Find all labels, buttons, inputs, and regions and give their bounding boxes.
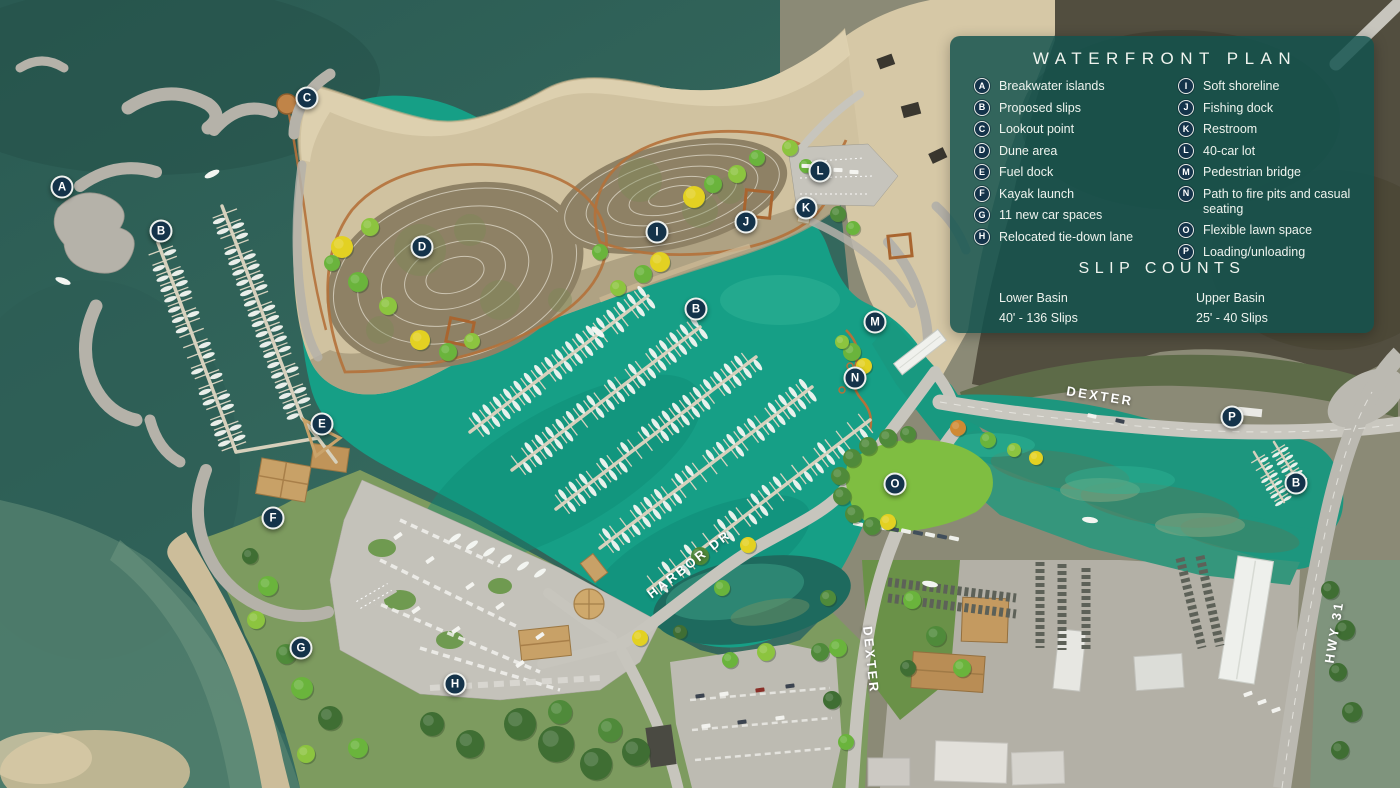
map-marker-b: B — [1285, 472, 1308, 495]
basin-name: Upper Basin — [1196, 288, 1268, 308]
map-marker-l: L — [809, 160, 832, 183]
legend-item-b: BProposed slips — [974, 100, 1178, 116]
legend-item-label: Path to fire pits and casual seating — [1203, 186, 1362, 217]
slip-count-upper-basin: Upper Basin25' - 40 Slips — [1196, 288, 1268, 328]
legend-item-label: Fuel dock — [999, 164, 1053, 180]
legend-badge: A — [974, 78, 990, 94]
legend-badge: M — [1178, 164, 1194, 180]
legend-item-label: Kayak launch — [999, 186, 1074, 202]
map-marker-n: N — [844, 367, 867, 390]
legend-item-label: Breakwater islands — [999, 78, 1105, 94]
legend-item-o: OFlexible lawn space — [1178, 222, 1362, 238]
legend-list-left: ABreakwater islandsBProposed slipsCLooko… — [974, 78, 1178, 265]
legend-badge: H — [974, 229, 990, 245]
legend-item-m: MPedestrian bridge — [1178, 164, 1362, 180]
legend-badge: D — [974, 143, 990, 159]
legend-badge: L — [1178, 143, 1194, 159]
legend-item-f: FKayak launch — [974, 186, 1178, 202]
legend-item-d: DDune area — [974, 143, 1178, 159]
map-marker-c: C — [296, 87, 319, 110]
legend-item-label: Proposed slips — [999, 100, 1081, 116]
map-marker-h: H — [444, 673, 467, 696]
map-marker-e: E — [311, 413, 334, 436]
legend-item-h: HRelocated tie-down lane — [974, 229, 1178, 245]
basin-name: Lower Basin — [999, 288, 1196, 308]
legend-badge: P — [1178, 244, 1194, 260]
legend-item-label: Lookout point — [999, 121, 1074, 137]
legend-item-i: ISoft shoreline — [1178, 78, 1362, 94]
slip-count-lower-basin: Lower Basin40' - 136 Slips — [999, 288, 1196, 328]
legend-item-label: Loading/unloading — [1203, 244, 1305, 260]
basin-slip-count: 25' - 40 Slips — [1196, 308, 1268, 328]
legend-badge: I — [1178, 78, 1194, 94]
map-marker-o: O — [884, 473, 907, 496]
legend-item-label: Pedestrian bridge — [1203, 164, 1301, 180]
legend-item-e: EFuel dock — [974, 164, 1178, 180]
legend-badge: C — [974, 121, 990, 137]
legend-badge: G — [974, 207, 990, 223]
map-marker-a: A — [51, 176, 74, 199]
waterfront-plan-map: DEXTERDEXTERHARBOR DRHWY 31 ABCDEFGHIJKL… — [0, 0, 1400, 788]
legend-badge: N — [1178, 186, 1194, 202]
legend-item-label: Fishing dock — [1203, 100, 1273, 116]
legend-item-n: NPath to fire pits and casual seating — [1178, 186, 1362, 217]
map-marker-i: I — [646, 221, 669, 244]
basin-slip-count: 40' - 136 Slips — [999, 308, 1196, 328]
legend-title: WATERFRONT PLAN — [950, 49, 1374, 69]
legend-columns: ABreakwater islandsBProposed slipsCLooko… — [974, 78, 1362, 265]
legend-item-p: PLoading/unloading — [1178, 244, 1362, 260]
legend-item-label: 11 new car spaces — [999, 207, 1102, 223]
map-marker-k: K — [795, 197, 818, 220]
legend-badge: O — [1178, 222, 1194, 238]
southeast-parking-lot — [670, 644, 842, 788]
legend-item-c: CLookout point — [974, 121, 1178, 137]
slip-counts-heading: SLIP COUNTS — [950, 260, 1374, 278]
map-marker-j: J — [735, 211, 758, 234]
map-marker-d: D — [411, 236, 434, 259]
legend-item-label: Soft shoreline — [1203, 78, 1279, 94]
map-marker-g: G — [290, 637, 313, 660]
legend-item-g: G11 new car spaces — [974, 207, 1178, 223]
legend-item-j: JFishing dock — [1178, 100, 1362, 116]
legend-badge: K — [1178, 121, 1194, 137]
legend-panel: WATERFRONT PLAN ABreakwater islandsBProp… — [950, 36, 1374, 333]
legend-list-right: ISoft shorelineJFishing dockKRestroomL40… — [1178, 78, 1362, 265]
legend-item-label: Restroom — [1203, 121, 1257, 137]
legend-item-label: Flexible lawn space — [1203, 222, 1312, 238]
legend-item-l: L40-car lot — [1178, 143, 1362, 159]
legend-badge: F — [974, 186, 990, 202]
map-marker-b: B — [685, 298, 708, 321]
map-marker-p: P — [1221, 406, 1244, 429]
legend-item-a: ABreakwater islands — [974, 78, 1178, 94]
legend-item-label: 40-car lot — [1203, 143, 1255, 159]
legend-item-label: Relocated tie-down lane — [999, 229, 1133, 245]
map-marker-f: F — [262, 507, 285, 530]
legend-badge: E — [974, 164, 990, 180]
legend-item-k: KRestroom — [1178, 121, 1362, 137]
map-marker-b: B — [150, 220, 173, 243]
legend-item-label: Dune area — [999, 143, 1057, 159]
slip-counts-columns: Lower Basin40' - 136 SlipsUpper Basin25'… — [999, 288, 1268, 328]
legend-badge: J — [1178, 100, 1194, 116]
legend-badge: B — [974, 100, 990, 116]
map-marker-m: M — [864, 311, 887, 334]
